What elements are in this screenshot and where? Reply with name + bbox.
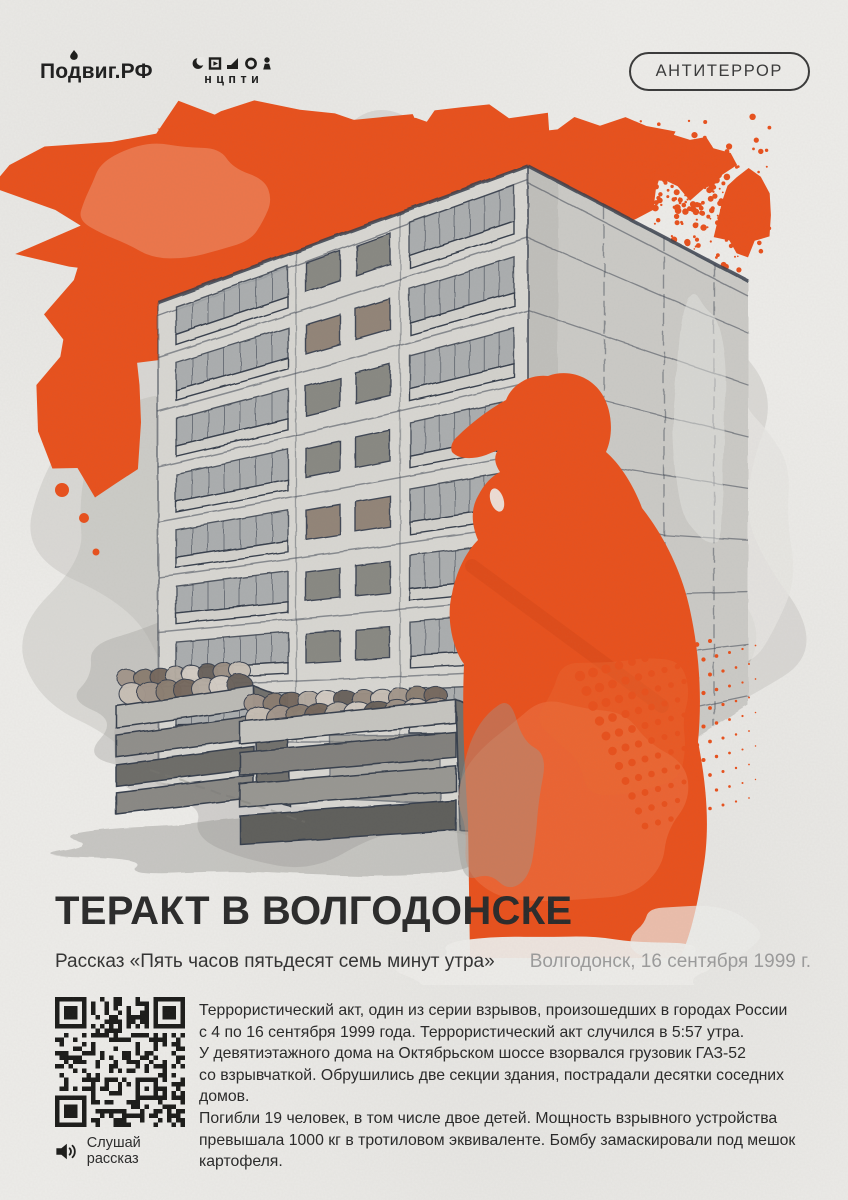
- illustration: [0, 0, 848, 985]
- dateline: Волгодонск, 16 сентября 1999 г.: [530, 951, 811, 973]
- flame-icon: [67, 50, 81, 64]
- crescent-icon: [192, 57, 205, 69]
- header: Подвиг.РФ нцпти АНТИТЕРРОР: [40, 52, 810, 91]
- audio-label: Слушай рассказ: [87, 1135, 187, 1167]
- subtitle-row: Рассказ «Пять часов пятьдесят семь минут…: [55, 951, 811, 973]
- poster: Подвиг.РФ нцпти АНТИТЕРРОР ТЕРАКТ В ВОЛГ…: [0, 0, 848, 1200]
- podvig-logo: Подвиг.РФ: [40, 60, 153, 84]
- qr-block: Слушай рассказ: [55, 997, 187, 1167]
- ncpti-logo-text: нцпти: [204, 72, 263, 86]
- circle-icon: [246, 59, 255, 68]
- podvig-logo-text: Подвиг.РФ: [40, 60, 153, 83]
- corner-shape-icon: [227, 58, 238, 69]
- audio-row: Слушай рассказ: [55, 1135, 187, 1167]
- story-body: Террористический акт, один из серии взры…: [199, 1000, 835, 1173]
- antiterror-badge: АНТИТЕРРОР: [629, 52, 810, 91]
- ncpti-logo: нцпти: [191, 57, 273, 86]
- play-square-icon: [210, 59, 220, 69]
- speaker-icon: [55, 1140, 78, 1163]
- person-icon: [263, 57, 271, 69]
- qr-code: [55, 997, 185, 1127]
- story-subtitle: Рассказ «Пять часов пятьдесят семь минут…: [55, 951, 495, 973]
- page-title: ТЕРАКТ В ВОЛГОДОНСКЕ: [55, 889, 572, 934]
- ncpti-glyph-row: [191, 57, 273, 70]
